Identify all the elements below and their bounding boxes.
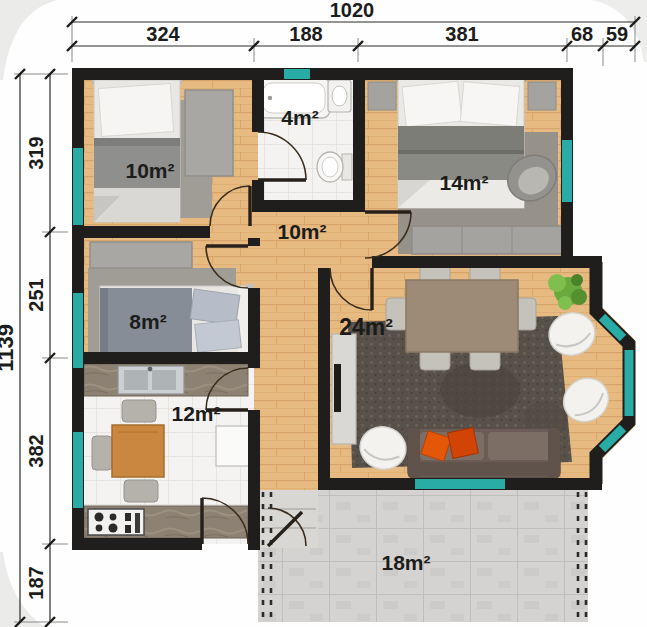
tv-unit-icon: [332, 334, 356, 444]
tv-icon: [334, 364, 341, 412]
dim-top-total: 1020: [330, 0, 375, 21]
wardrobe-icon: [185, 90, 233, 176]
dim-left-seg-2: 251: [25, 278, 47, 311]
room-label-bedroom-2: 14m²: [439, 171, 488, 194]
dimension-left: 1139 319 251 382 187: [0, 69, 68, 627]
kitchen-counter-sink: [84, 364, 248, 396]
sofa-icon: [408, 428, 560, 478]
dim-top-seg-2: 188: [289, 23, 322, 45]
window: [562, 140, 572, 202]
dim-top-seg-5: 59: [606, 23, 628, 45]
room-label-living-room: 24m²: [339, 314, 393, 340]
wardrobe-icon: [412, 226, 562, 254]
floor-plan-stage: 10m² 4m² 14m² 10m² 8m² 24m² 12m² 18m² 10…: [0, 0, 647, 627]
room-label-kitchen: 12m²: [171, 402, 220, 425]
window: [73, 432, 83, 508]
window: [284, 69, 310, 79]
window: [415, 479, 505, 489]
dim-top-seg-3: 381: [445, 23, 478, 45]
single-bed-icon: [92, 76, 182, 222]
wardrobe-icon: [90, 242, 192, 268]
orange-pillow-icon: [448, 428, 479, 459]
room-label-hallway: 10m²: [277, 220, 326, 243]
toilet-icon: [317, 152, 352, 182]
room-label-bedroom-1: 10m²: [125, 159, 174, 182]
dim-left-seg-1: 319: [25, 136, 47, 169]
room-label-bathroom: 4m²: [281, 106, 318, 129]
bathroom-sink-icon: [328, 80, 351, 112]
dim-top-seg-4: 68: [571, 23, 593, 45]
room-label-terrace: 18m²: [381, 551, 430, 574]
room-label-bedroom-3: 8m²: [129, 310, 166, 333]
single-bed-icon: [100, 284, 254, 360]
dimension-top: 1020 324 188 381 68 59: [67, 0, 640, 66]
floor-plan-drawing: 10m² 4m² 14m² 10m² 8m² 24m² 12m² 18m² 10…: [0, 0, 647, 627]
nightstand-icon: [528, 82, 556, 110]
stove-icon: [88, 509, 144, 535]
nightstand-icon: [368, 82, 396, 110]
dining-table-icon: [406, 280, 518, 352]
entry-step: [258, 490, 318, 548]
fridge-icon: [216, 426, 252, 466]
dim-top-seg-1: 324: [146, 23, 180, 45]
dim-left-seg-3: 382: [25, 434, 47, 467]
dim-left-total: 1139: [0, 324, 18, 372]
window: [73, 148, 83, 225]
dim-left-seg-4: 187: [25, 566, 47, 599]
window: [73, 293, 83, 368]
kitchen-counter-stove: [84, 506, 248, 538]
